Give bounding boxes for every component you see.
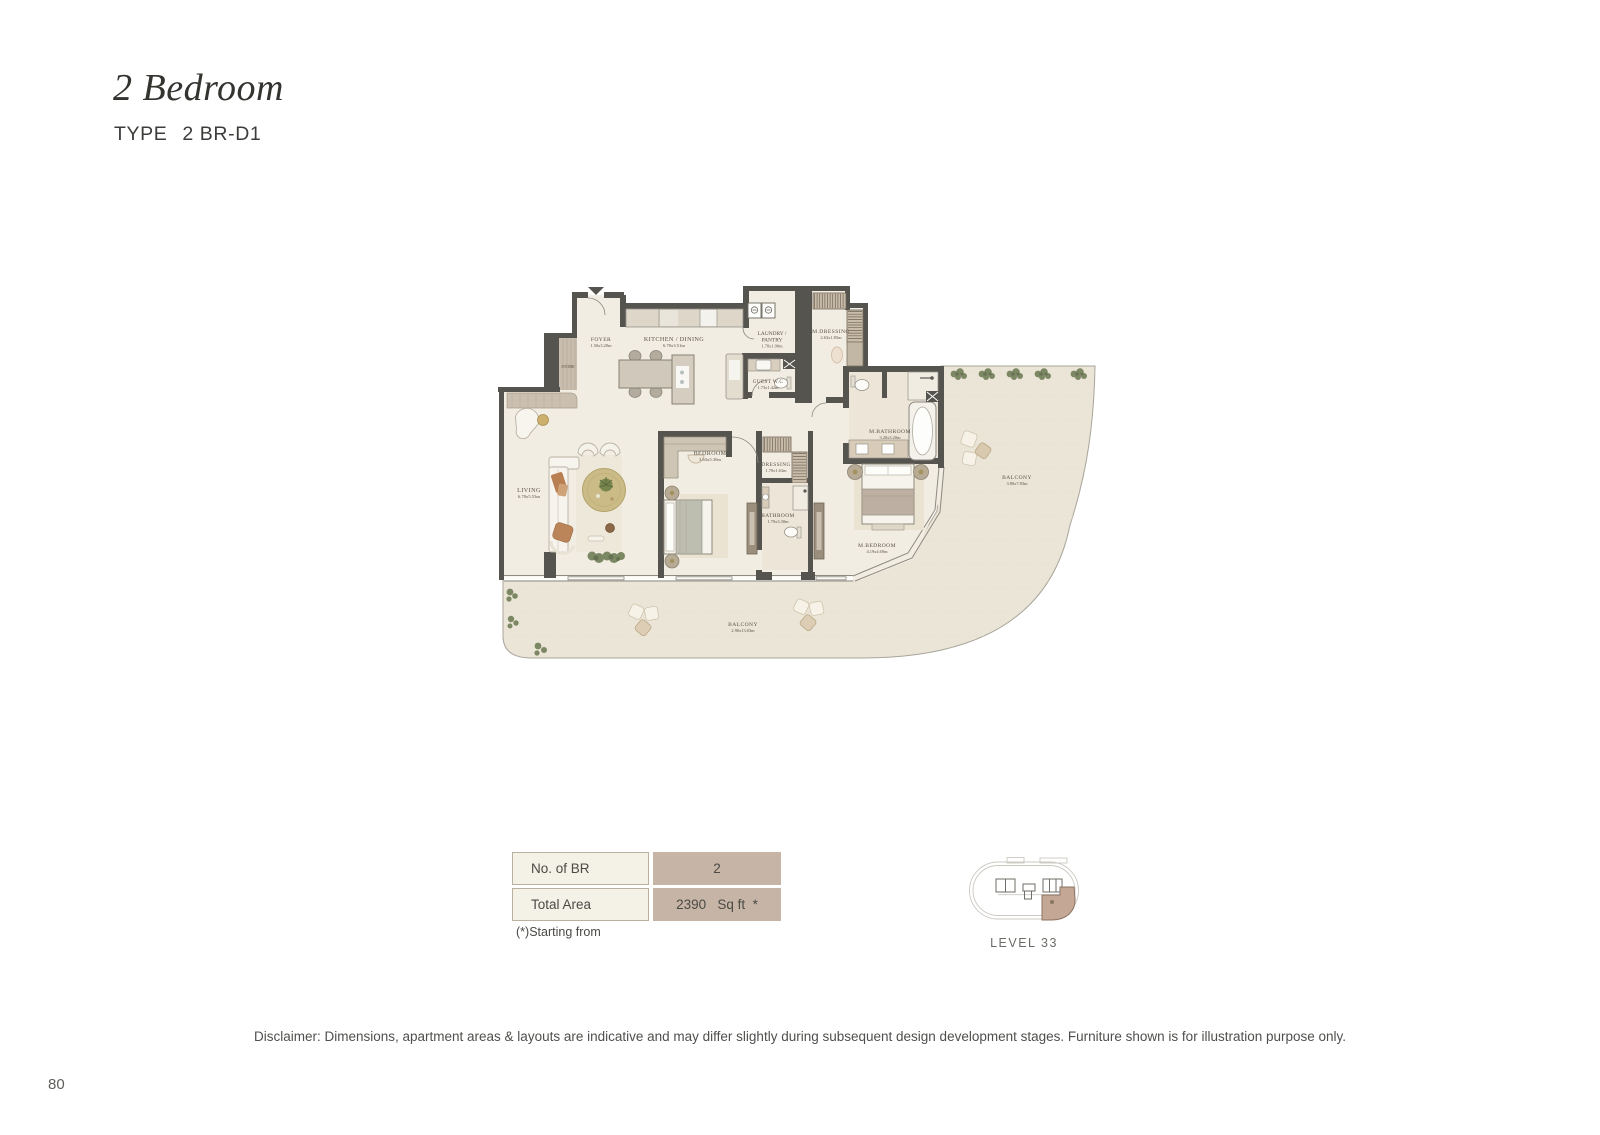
- svg-text:1.50x3.20m: 1.50x3.20m: [591, 343, 613, 348]
- svg-text:LAUNDRY /: LAUNDRY /: [758, 331, 787, 337]
- svg-text:4.19x4.69m: 4.19x4.69m: [867, 549, 889, 554]
- svg-text:3.80x7.83m: 3.80x7.83m: [1007, 481, 1029, 486]
- svg-text:LIVING: LIVING: [517, 487, 541, 494]
- svg-text:6.70x5.53m: 6.70x5.53m: [518, 494, 540, 499]
- svg-text:1.70x1.63m: 1.70x1.63m: [766, 468, 788, 473]
- svg-text:3.63x5.30m: 3.63x5.30m: [699, 457, 721, 462]
- svg-text:3.20x3.20m: 3.20x3.20m: [880, 435, 902, 440]
- svg-text:STORE: STORE: [561, 364, 575, 369]
- svg-text:6.70x3.51m: 6.70x3.51m: [663, 343, 685, 348]
- svg-text:2.63x1.85m: 2.63x1.85m: [821, 335, 843, 340]
- svg-text:1.70x1.90m: 1.70x1.90m: [762, 344, 784, 349]
- svg-text:1.73x1.42m: 1.73x1.42m: [758, 385, 780, 390]
- svg-text:KITCHEN / DINING: KITCHEN / DINING: [644, 336, 704, 343]
- svg-text:2.90x13.03m: 2.90x13.03m: [731, 628, 755, 633]
- svg-text:1.70x3.30m: 1.70x3.30m: [768, 519, 790, 524]
